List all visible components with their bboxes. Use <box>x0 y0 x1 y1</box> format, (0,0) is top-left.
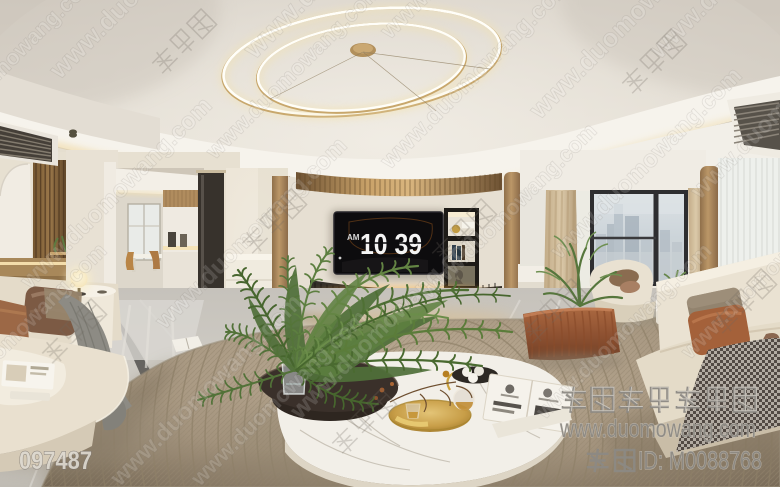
svg-text:www.duomowang.com: www.duomowang.com <box>559 415 756 443</box>
svg-text:AM: AM <box>347 233 360 242</box>
svg-text:ID: M0088768: ID: M0088768 <box>638 447 762 475</box>
svg-text:097487: 097487 <box>19 447 92 475</box>
svg-text:10 39: 10 39 <box>360 229 422 261</box>
